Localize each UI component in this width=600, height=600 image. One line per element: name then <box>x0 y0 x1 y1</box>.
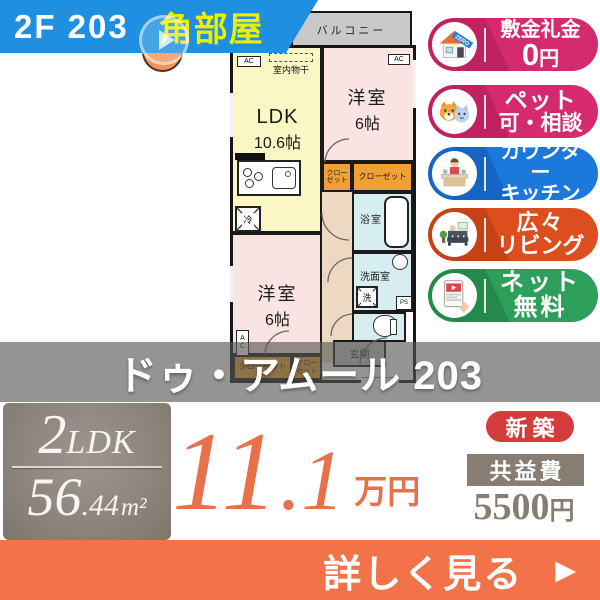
property-name: ドゥ・アムール 203 <box>117 343 483 401</box>
badge-text: 広々 リビング <box>491 212 598 258</box>
sofa-living-icon <box>432 212 477 257</box>
balcony-label: バルコニー <box>317 22 387 38</box>
badge-free-internet: ネット 無料 <box>428 269 598 322</box>
hallway <box>322 192 352 363</box>
toilet-icon <box>373 315 397 337</box>
closet-upper-small: クローゼット <box>322 162 352 192</box>
badge-separator <box>484 95 486 129</box>
new-construction-badge: 新築 <box>486 411 574 442</box>
window <box>230 266 233 302</box>
property-title-band: ドゥ・アムール 203 <box>0 342 600 402</box>
badge-text: カウンター キッチン <box>491 142 598 204</box>
badge-pets-ok: ペット 可・相談 <box>428 85 598 138</box>
bathtub-icon <box>384 196 409 248</box>
closet-upper-wide: クローゼット <box>352 162 413 192</box>
kitchen-counter-edge <box>235 153 265 160</box>
drying-rod <box>269 53 313 62</box>
pets-icon <box>432 89 477 134</box>
floorplan-balcony: バルコニー <box>291 11 412 48</box>
badge-text: ペット 可・相談 <box>491 89 598 135</box>
window <box>230 93 233 137</box>
badge-no-deposit: ZERO 敷金礼金 0円 <box>428 18 598 71</box>
ac-unit-right: AC <box>388 54 410 65</box>
badge-counter-kitchen: カウンター キッチン <box>428 147 598 200</box>
unit-number: 2F 203 <box>14 8 129 46</box>
house-zero-icon: ZERO <box>432 22 477 67</box>
window <box>413 60 416 108</box>
badge-separator <box>484 157 486 191</box>
kitchen-counter <box>237 160 301 196</box>
area-row: 56.44m² <box>3 470 171 524</box>
sink-icon <box>272 167 296 189</box>
listing-card: バルコニー クローゼット クローゼット クローゼット クローゼット 玄関 LDK… <box>0 0 600 600</box>
badge-spacious-living: 広々 リビング <box>428 208 598 261</box>
layout-area-panel: 2LDK 56.44m² <box>3 403 171 540</box>
indoor-drying-label: 室内物干 <box>263 63 319 76</box>
fridge-space: 冷 <box>235 206 261 232</box>
stove-icon <box>242 167 266 191</box>
counter-kitchen-icon <box>432 151 477 196</box>
badge-separator <box>484 28 486 62</box>
washer-space: 洗 <box>356 286 378 308</box>
badge-text: 敷金礼金 0円 <box>491 20 598 70</box>
play-button-icon[interactable] <box>139 15 189 65</box>
basin-icon <box>392 254 408 270</box>
floorplan: クローゼット クローゼット クローゼット クローゼット 玄関 LDK 10.6帖… <box>230 45 416 383</box>
rent-price: 11.1万円 <box>172 416 420 528</box>
tablet-video-icon <box>432 273 477 318</box>
details-button[interactable]: 詳しく見る ▶ <box>0 540 600 600</box>
ac-unit-left: AC <box>237 56 261 67</box>
pricing-section: 2LDK 56.44m² 11.1万円 新築 共益費 5500円 詳しく見る ▶ <box>0 402 600 600</box>
badge-separator <box>484 279 486 313</box>
badge-text: ネット 無料 <box>491 271 598 321</box>
layout-row: 2LDK <box>3 407 171 463</box>
room-bedroom-1 <box>322 48 413 162</box>
common-fee-label: 共益費 <box>467 454 584 486</box>
common-fee-value: 5500円 <box>459 488 589 527</box>
arrow-right-icon: ▶ <box>555 557 576 584</box>
badge-separator <box>484 218 486 252</box>
pipe-space: PS <box>396 296 412 310</box>
